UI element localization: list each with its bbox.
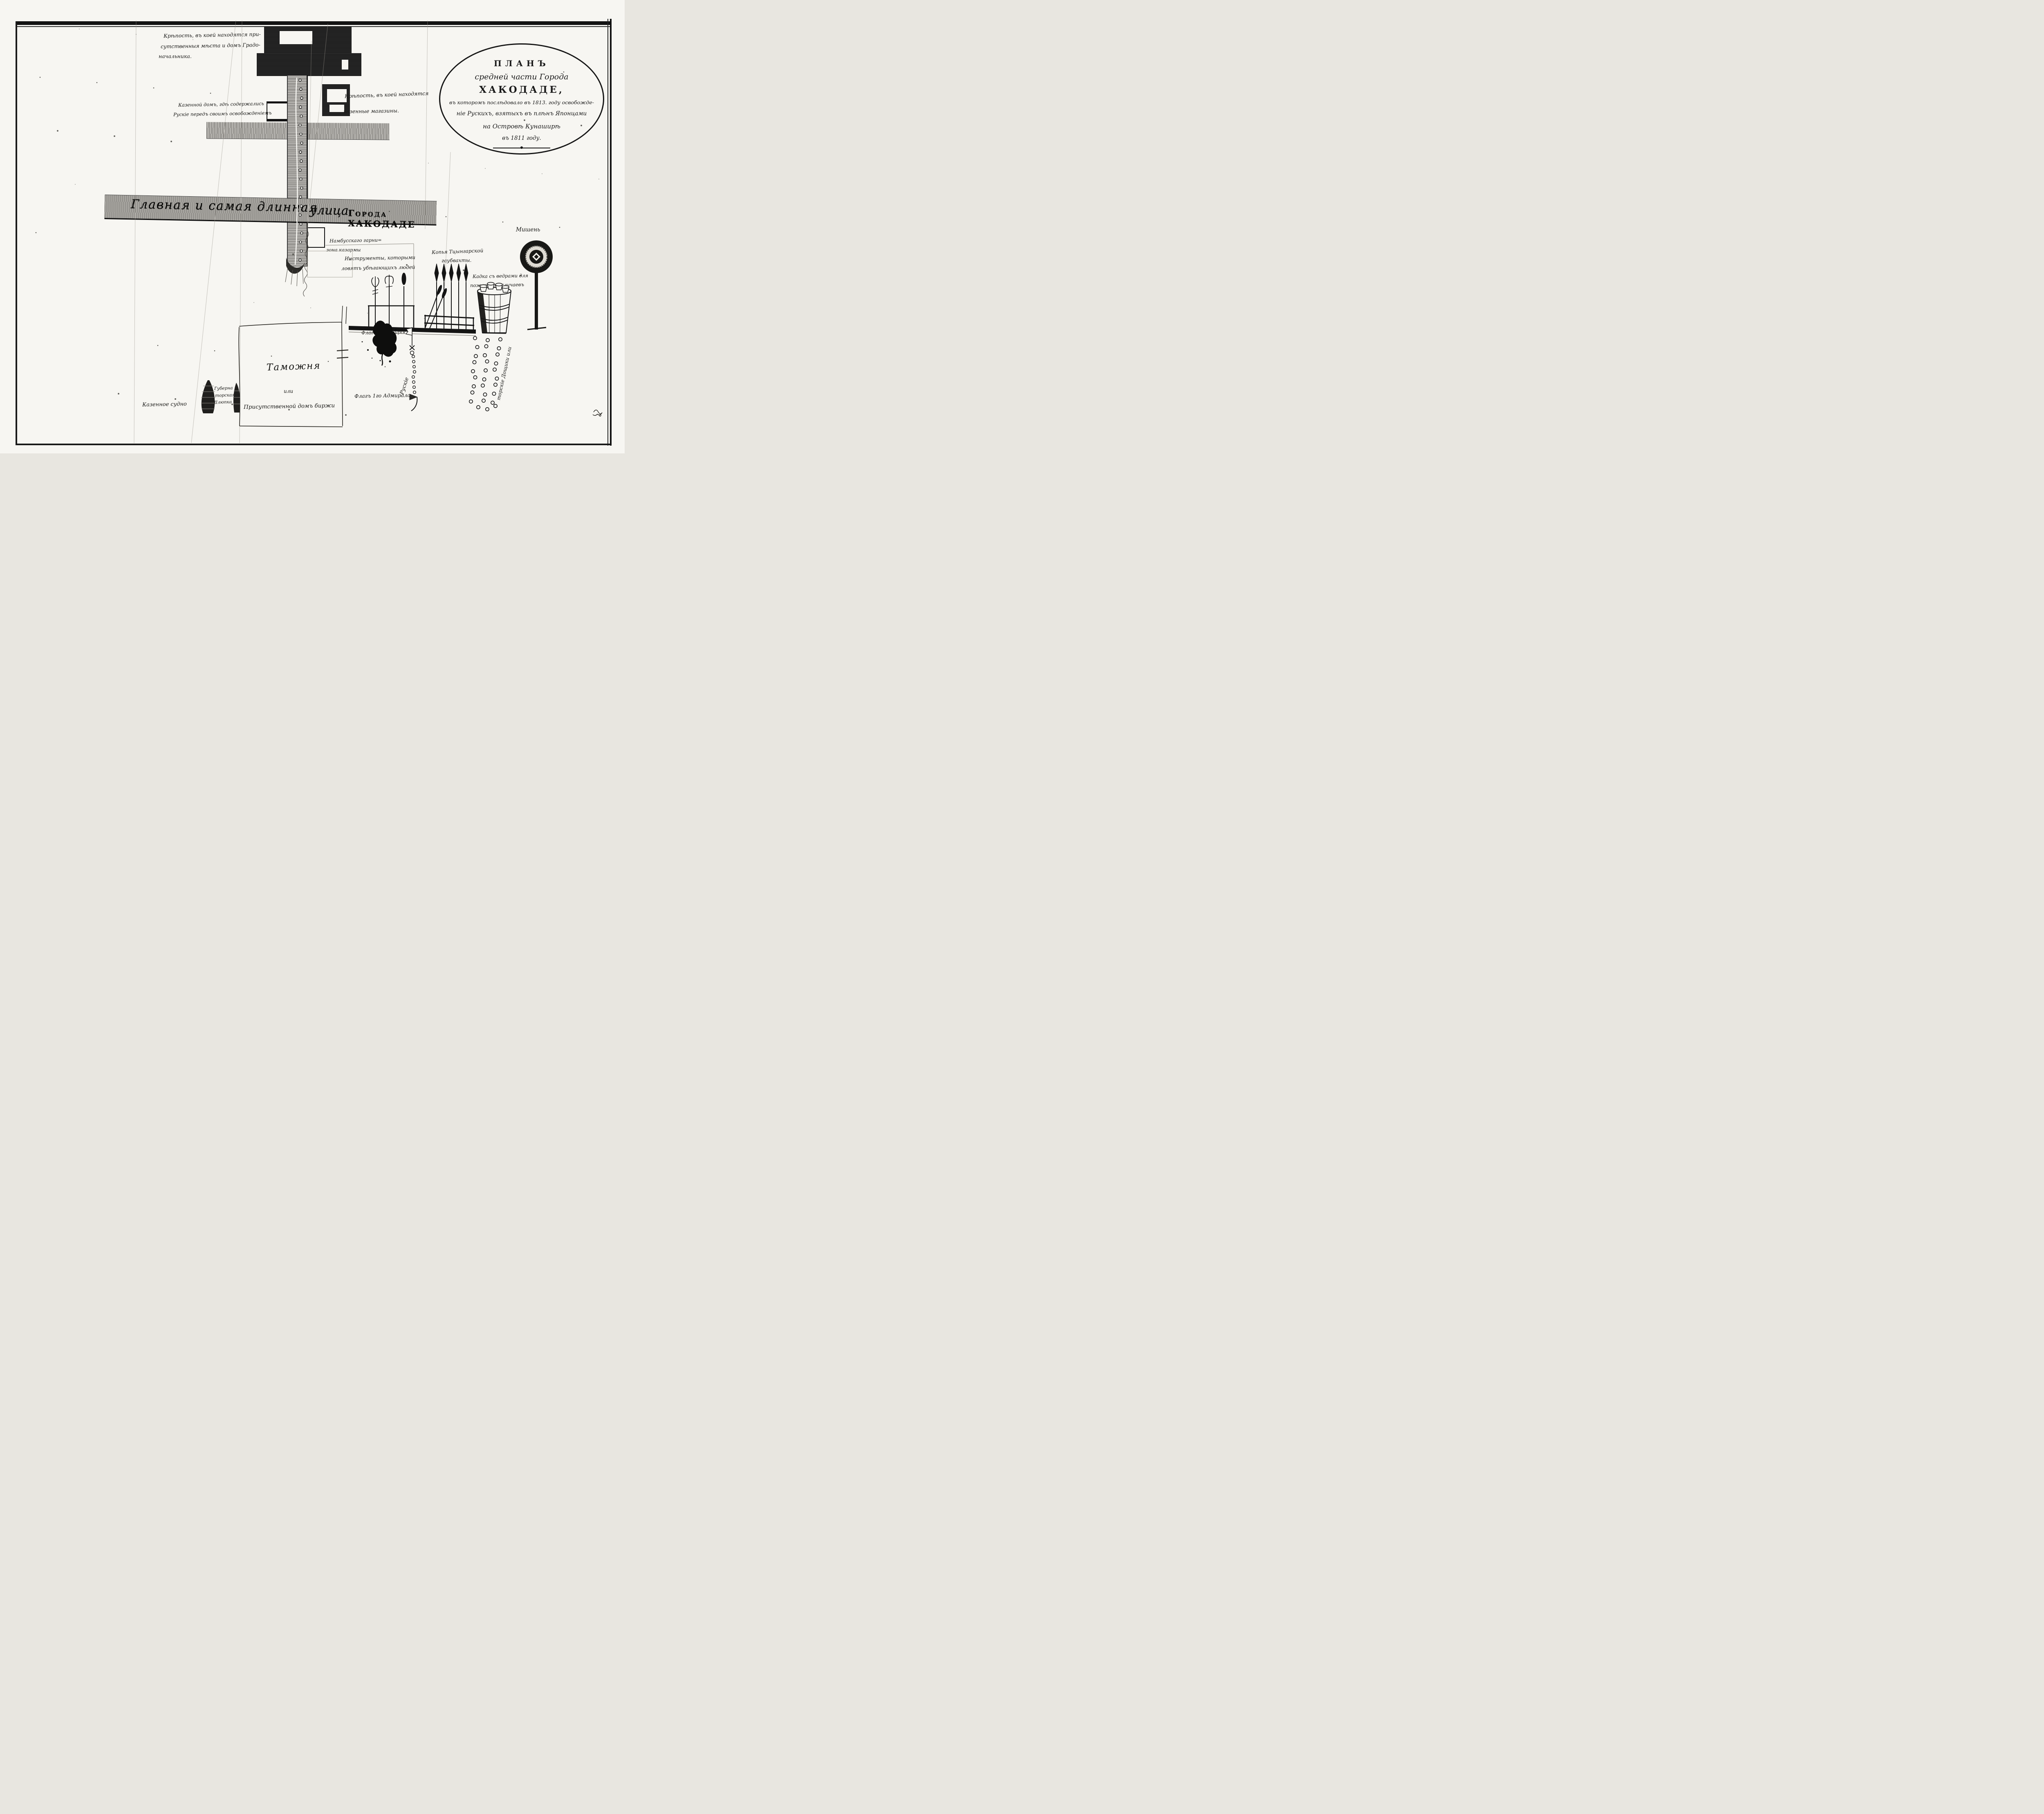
- map-detail: [542, 173, 542, 174]
- map-detail: [240, 20, 242, 443]
- map-detail: [367, 313, 368, 313]
- map-detail: [136, 34, 136, 34]
- map-detail: [239, 322, 342, 326]
- spears: [435, 264, 468, 330]
- map-detail: [96, 82, 98, 83]
- map-detail: [484, 369, 487, 372]
- map-detail: [482, 399, 485, 402]
- map-detail: [307, 41, 312, 271]
- map-detail: [435, 264, 439, 282]
- map-detail: [292, 253, 294, 255]
- map-detail: [249, 45, 250, 45]
- map-detail: [412, 381, 415, 383]
- map-detail: [495, 377, 498, 380]
- map-detail: [413, 370, 416, 373]
- map-detail: [300, 178, 302, 180]
- map-detail: [79, 29, 79, 29]
- map-detail: [389, 361, 391, 363]
- fire-tub-drawing: [477, 283, 511, 334]
- map-detail: [563, 72, 565, 73]
- map-detail: [134, 20, 136, 443]
- map-detail: [300, 115, 303, 117]
- map-detail: [493, 368, 496, 371]
- garrison-plot-lines: [307, 244, 414, 325]
- customs-house-outline: [239, 306, 348, 427]
- map-detail: [473, 361, 476, 364]
- map-detail: [559, 227, 560, 228]
- map-detail: [210, 93, 211, 94]
- map-detail: [300, 97, 303, 99]
- street-crease: [295, 78, 298, 265]
- map-detail: [413, 365, 416, 368]
- map-detail: [402, 273, 406, 285]
- map-detail: [494, 404, 497, 408]
- map-drawings: [0, 0, 625, 453]
- map-detail: [157, 345, 159, 346]
- map-detail: [231, 404, 233, 405]
- map-detail: [345, 414, 347, 416]
- map-detail: [494, 383, 497, 386]
- state-vessel-drawing: [201, 380, 215, 413]
- map-detail: [299, 124, 301, 126]
- map-detail: [412, 360, 415, 363]
- map-detail: [214, 350, 215, 352]
- map-detail: [114, 135, 115, 137]
- map-detail: [463, 269, 464, 271]
- map-detail: [406, 264, 408, 266]
- map-detail: [524, 119, 525, 121]
- admiral-flag-drawing: [410, 394, 417, 411]
- map-detail: [412, 355, 415, 358]
- map-detail: [367, 349, 369, 351]
- map-detail: [471, 391, 474, 394]
- map-detail: [486, 408, 489, 411]
- map-detail: [487, 283, 494, 285]
- map-detail: [385, 275, 393, 285]
- map-detail: [473, 336, 477, 340]
- map-detail: [295, 78, 298, 265]
- map-detail: [449, 264, 453, 282]
- bucket-trail: [469, 336, 502, 411]
- map-detail: [175, 398, 176, 400]
- map-detail: [170, 141, 172, 142]
- map-detail: [337, 350, 348, 358]
- map-detail: [475, 345, 479, 349]
- map-detail: [485, 360, 489, 363]
- map-detail: [482, 333, 506, 333]
- map-detail: [307, 251, 352, 277]
- map-detail: [477, 291, 487, 333]
- map-detail: [57, 130, 58, 132]
- map-detail: [118, 393, 119, 395]
- map-detail: [342, 322, 343, 426]
- map-detail: [299, 106, 302, 108]
- street-post-chain: [299, 79, 303, 261]
- map-detail: [413, 386, 416, 389]
- map-detail: [349, 259, 351, 260]
- map-detail: [464, 264, 468, 282]
- map-detail: [445, 152, 450, 286]
- map-detail: [385, 366, 386, 368]
- map-detail: [502, 222, 504, 223]
- map-detail: [299, 151, 302, 153]
- map-detail: [484, 345, 488, 348]
- map-detail: [494, 362, 498, 365]
- map-detail: [428, 163, 428, 163]
- map-detail: [598, 179, 599, 179]
- map-sheet: Главная и самая длинная улица Города ХАК…: [0, 0, 625, 453]
- map-detail: [482, 378, 486, 381]
- map-detail: [328, 361, 329, 362]
- map-detail: [306, 50, 307, 50]
- map-detail: [75, 184, 75, 184]
- map-detail: [40, 77, 41, 78]
- map-detail: [299, 214, 301, 216]
- map-detail: [299, 196, 302, 198]
- map-detail: [442, 264, 446, 282]
- map-detail: [380, 360, 381, 361]
- map-detail: [412, 376, 415, 379]
- map-detail: [481, 384, 484, 387]
- map-detail: [300, 232, 303, 234]
- map-detail: [599, 415, 601, 416]
- map-detail: [271, 356, 272, 357]
- map-detail: [303, 24, 328, 266]
- map-detail: [202, 380, 215, 413]
- map-detail: [382, 354, 383, 365]
- russians-path-chain: [412, 355, 416, 394]
- map-detail: [372, 276, 379, 288]
- map-detail: [325, 244, 414, 245]
- map-detail: [240, 426, 343, 427]
- map-detail: [300, 142, 303, 144]
- map-detail: [191, 20, 236, 443]
- map-detail: [300, 88, 302, 90]
- map-detail: [300, 133, 302, 135]
- map-detail: [395, 329, 396, 330]
- map-detail: [372, 358, 372, 359]
- map-detail: [469, 400, 473, 403]
- map-detail: [486, 339, 489, 342]
- map-detail: [22, 23, 22, 24]
- map-detail: [477, 406, 480, 409]
- map-detail: [299, 259, 301, 261]
- map-detail: [499, 338, 502, 341]
- map-detail: [300, 250, 303, 252]
- map-detail: [491, 401, 494, 404]
- paper-creases: [134, 20, 450, 443]
- map-detail: [300, 205, 303, 207]
- map-detail: [535, 272, 538, 330]
- map-detail: [372, 321, 397, 357]
- instrument-rack: [368, 273, 415, 330]
- margin-scribble: [593, 410, 602, 416]
- map-detail: [362, 341, 363, 343]
- target-drawing: [520, 240, 553, 330]
- map-detail: [481, 323, 481, 324]
- map-detail: [502, 286, 509, 289]
- map-detail: [253, 302, 254, 303]
- map-detail: [485, 168, 485, 168]
- map-detail: [472, 385, 475, 388]
- map-detail: [288, 409, 290, 410]
- map-detail: [410, 351, 414, 355]
- spear-rack: [424, 264, 474, 331]
- map-detail: [299, 79, 301, 81]
- map-detail: [457, 264, 461, 282]
- map-detail: [483, 393, 486, 396]
- map-detail: [36, 232, 37, 233]
- map-detail: [299, 169, 301, 171]
- map-detail: [495, 283, 502, 286]
- map-detail: [413, 391, 416, 394]
- map-detail: [153, 87, 155, 89]
- map-detail: [300, 187, 303, 189]
- map-detail: [342, 306, 347, 324]
- map-detail: [473, 376, 477, 379]
- map-detail: [489, 294, 500, 333]
- map-detail: [497, 347, 500, 350]
- map-detail: [410, 394, 417, 400]
- map-detail: [193, 39, 193, 40]
- map-detail: [474, 354, 477, 358]
- map-detail: [410, 345, 415, 350]
- map-detail: [471, 370, 475, 373]
- map-detail: [424, 318, 424, 318]
- map-detail: [480, 285, 487, 288]
- map-detail: [425, 20, 428, 229]
- map-detail: [483, 354, 486, 357]
- map-detail: [446, 216, 447, 218]
- map-detail: [389, 211, 390, 212]
- map-detail: [580, 125, 582, 126]
- map-detail: [496, 353, 499, 356]
- map-detail: [300, 160, 303, 162]
- map-detail: [300, 223, 302, 225]
- governor-boat-drawing: [233, 383, 240, 413]
- map-detail: [492, 392, 495, 395]
- map-detail: [310, 307, 311, 308]
- map-detail: [520, 275, 521, 276]
- map-detail: [299, 241, 302, 243]
